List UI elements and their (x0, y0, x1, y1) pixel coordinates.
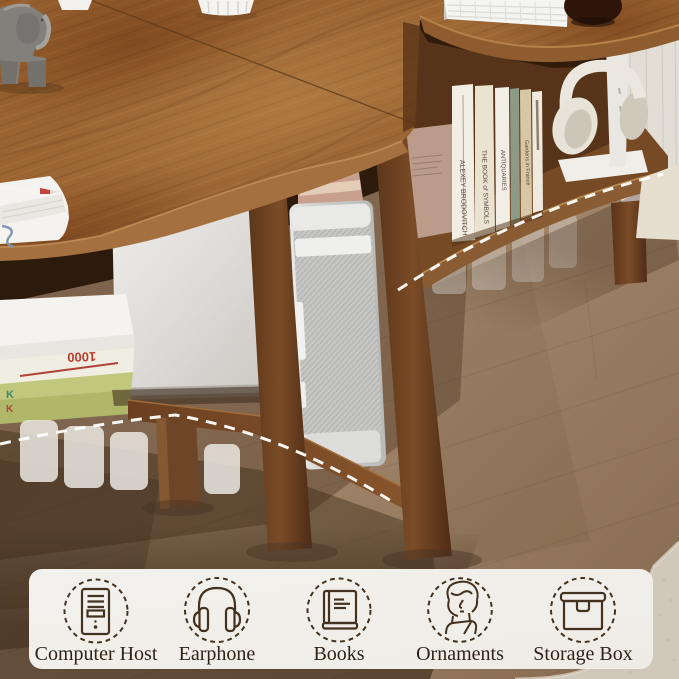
svg-text:Ornaments: Ornaments (416, 643, 504, 665)
svg-text:K: K (6, 389, 14, 401)
svg-text:K: K (6, 404, 14, 415)
svg-text:Computer Host: Computer Host (35, 643, 158, 665)
svg-text:Earphone: Earphone (179, 643, 256, 665)
svg-text:Books: Books (313, 643, 364, 665)
svg-text:1000: 1000 (67, 349, 96, 365)
svg-text:Storage Box: Storage Box (533, 643, 632, 665)
